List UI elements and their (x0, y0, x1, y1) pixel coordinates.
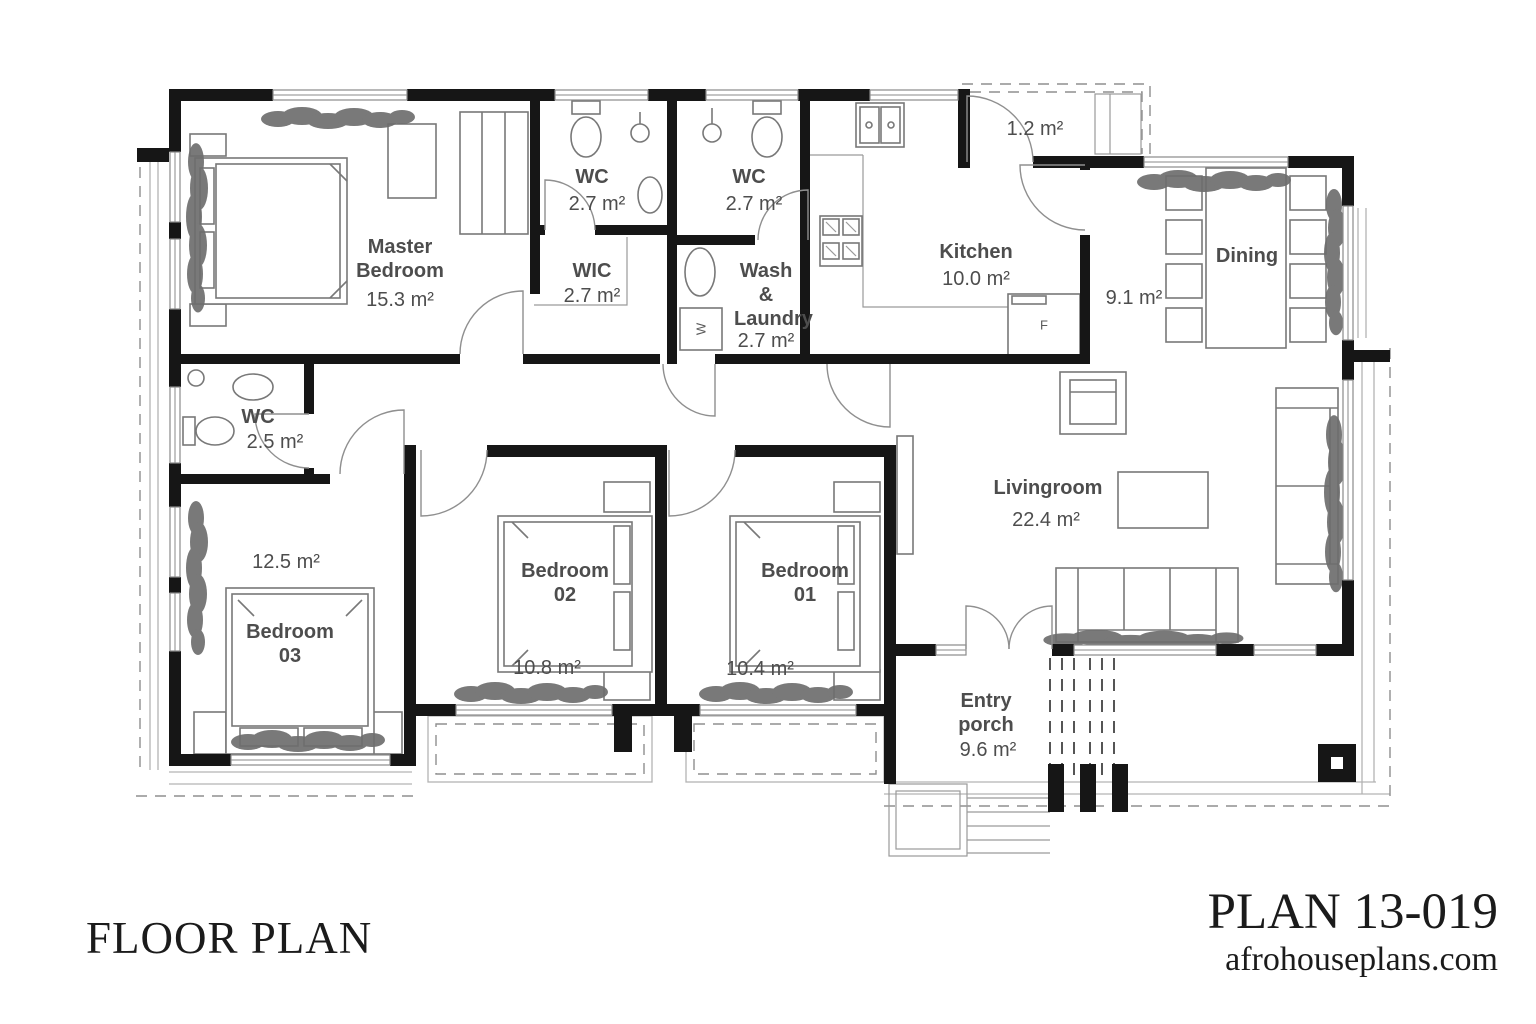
washer-label: W (694, 323, 709, 335)
room-name-wash-laundry: Wash & Laundry (734, 259, 798, 331)
website: afrohouseplans.com (1208, 940, 1498, 979)
room-name-wic: WIC (573, 259, 612, 283)
room-area-bedroom-02: 10.8 m² (513, 656, 581, 680)
room-area-dining: 9.1 m² (1106, 286, 1163, 310)
floor-plan-drawing (0, 0, 1536, 1024)
room-name-wc-hall: WC (241, 405, 274, 429)
plan-number: PLAN 13-019 (1208, 884, 1498, 940)
master-dresser (388, 124, 436, 198)
room-name-wc-master: WC (575, 165, 608, 189)
room-area-wic: 2.7 m² (564, 284, 621, 308)
room-area-master-bedroom: 15.3 m² (366, 288, 434, 312)
room-name-kitchen: Kitchen (939, 240, 1012, 264)
room-name-bedroom-03: Bedroom 03 (240, 620, 340, 668)
coffee-table (1118, 472, 1208, 528)
room-area-wc-top: 2.7 m² (726, 192, 783, 216)
room-area-wash-laundry: 2.7 m² (738, 329, 795, 353)
room-area-livingroom: 22.4 m² (1012, 508, 1080, 532)
room-name-bedroom-01: Bedroom 01 (755, 559, 855, 607)
master-wardrobe (460, 112, 528, 234)
room-area-side-stoop: 1.2 m² (1007, 117, 1064, 141)
room-name-entry-porch: Entry porch (951, 689, 1021, 737)
room-area-bedroom-01: 10.4 m² (726, 657, 794, 681)
room-name-dining: Dining (1216, 244, 1278, 268)
room-name-master-bedroom: Master Bedroom (335, 235, 465, 283)
column-core (1331, 757, 1343, 769)
wc-top-fixtures (703, 101, 782, 157)
tv-console (897, 436, 913, 554)
room-area-bedroom-03: 12.5 m² (252, 550, 320, 574)
floor-plan-canvas: Master Bedroom 15.3 m² WC 2.7 m² WC 2.7 … (0, 0, 1536, 1024)
fridge-label: F (1040, 318, 1048, 333)
room-name-livingroom: Livingroom (994, 476, 1103, 500)
master-bed (190, 134, 347, 326)
room-area-entry-porch: 9.6 m² (960, 738, 1017, 762)
room-area-wc-master: 2.7 m² (569, 192, 626, 216)
armchair (1060, 372, 1126, 434)
bed-03 (194, 588, 402, 754)
living-furniture (897, 372, 1338, 642)
room-name-bedroom-02: Bedroom 02 (515, 559, 615, 607)
floor-plan-page: { "footer": { "title": "FLOOR PLAN", "pl… (0, 0, 1536, 1024)
room-name-wc-top: WC (732, 165, 765, 189)
room-area-wc-hall: 2.5 m² (247, 430, 304, 454)
page-title: FLOOR PLAN (86, 912, 372, 964)
plan-branding: PLAN 13-019 afrohouseplans.com (1208, 884, 1498, 979)
room-area-kitchen: 10.0 m² (942, 267, 1010, 291)
